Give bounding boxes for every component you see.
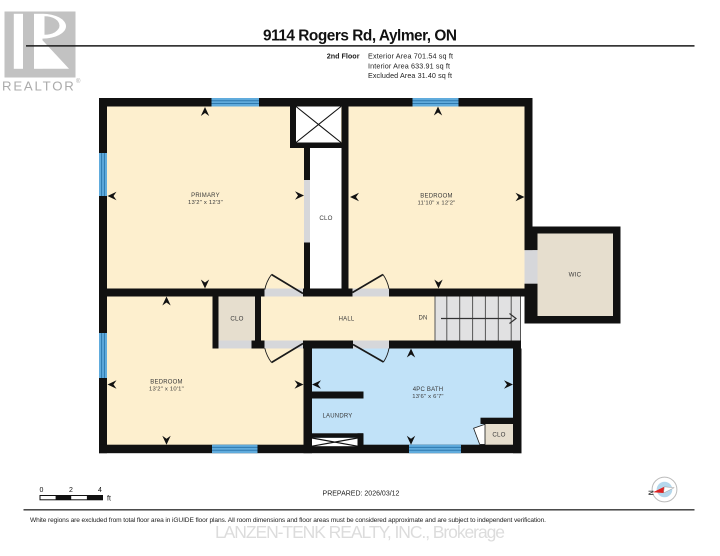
svg-text:HALL: HALL [339,317,355,323]
svg-text:®: ® [76,78,81,85]
svg-text:9114 Rogers Rd, Aylmer, ON: 9114 Rogers Rd, Aylmer, ON [263,27,457,44]
svg-text:Interior Area 633.91 sq ft: Interior Area 633.91 sq ft [368,61,450,70]
svg-text:Excluded Area 31.40 sq ft: Excluded Area 31.40 sq ft [368,71,452,80]
svg-text:CLO: CLO [319,215,332,222]
svg-text:2nd Floor: 2nd Floor [327,51,360,60]
svg-text:13'6" x 6'7": 13'6" x 6'7" [412,394,443,400]
svg-text:LANZEN-TENK REALTY, INC., Brok: LANZEN-TENK REALTY, INC., Brokerage [215,522,505,542]
svg-text:4PC BATH: 4PC BATH [413,387,444,393]
svg-text:REALTOR: REALTOR [2,79,75,94]
svg-text:0: 0 [40,487,44,494]
svg-text:DN: DN [418,316,427,322]
svg-text:BEDROOM: BEDROOM [420,194,452,200]
svg-text:Exterior Area 701.54 sq ft: Exterior Area 701.54 sq ft [368,51,453,60]
svg-text:LAUNDRY: LAUNDRY [323,414,353,420]
svg-text:WIC: WIC [569,272,582,279]
svg-text:ft: ft [107,496,111,503]
svg-text:11'10" x 12'2": 11'10" x 12'2" [418,201,456,207]
svg-text:13'2" x 10'1": 13'2" x 10'1" [149,387,184,393]
svg-text:BEDROOM: BEDROOM [150,380,182,386]
svg-text:2: 2 [69,487,73,494]
svg-text:PRIMARY: PRIMARY [191,193,220,199]
svg-text:N: N [647,490,654,495]
svg-text:White regions are excluded fro: White regions are excluded from total fl… [30,517,546,524]
svg-text:CLO: CLO [492,432,505,439]
svg-text:CLO: CLO [230,316,243,323]
svg-text:PREPARED: 2026/03/12: PREPARED: 2026/03/12 [323,491,400,498]
svg-text:13'2" x 12'3": 13'2" x 12'3" [188,200,223,206]
svg-text:4: 4 [98,487,102,494]
